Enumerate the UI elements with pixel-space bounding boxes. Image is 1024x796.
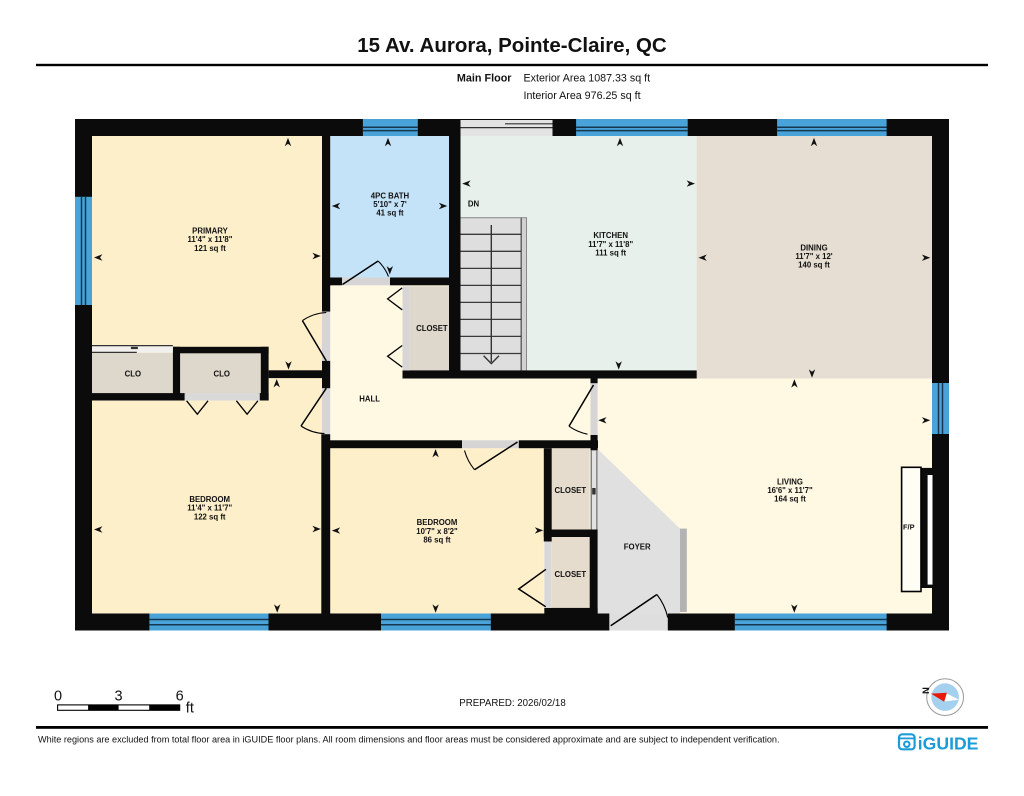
svg-text:CLO: CLO	[213, 370, 229, 379]
svg-text:ft: ft	[186, 701, 194, 717]
svg-text:15 Av. Aurora, Pointe-Claire,: 15 Av. Aurora, Pointe-Claire, QC	[357, 34, 667, 57]
svg-text:111 sq ft: 111 sq ft	[595, 248, 626, 257]
svg-text:0: 0	[54, 689, 62, 705]
svg-text:CLOSET: CLOSET	[554, 486, 586, 495]
svg-text:Interior Area 976.25 sq ft: Interior Area 976.25 sq ft	[524, 90, 641, 102]
svg-text:140 sq ft: 140 sq ft	[798, 261, 830, 270]
svg-text:PREPARED: 2026/02/18: PREPARED: 2026/02/18	[459, 698, 565, 709]
svg-text:3: 3	[115, 689, 123, 705]
svg-text:CLOSET: CLOSET	[416, 324, 448, 333]
svg-text:122 sq ft: 122 sq ft	[194, 512, 226, 521]
svg-text:CLO: CLO	[125, 370, 141, 379]
svg-text:iGUIDE: iGUIDE	[918, 734, 979, 754]
svg-text:FOYER: FOYER	[624, 543, 651, 552]
svg-text:DN: DN	[468, 199, 480, 208]
svg-text:Main Floor: Main Floor	[457, 73, 512, 85]
svg-text:121 sq ft: 121 sq ft	[194, 244, 226, 253]
svg-text:N: N	[920, 687, 931, 694]
svg-text:41 sq ft: 41 sq ft	[376, 209, 404, 218]
svg-text:White regions are excluded fro: White regions are excluded from total fl…	[38, 735, 780, 745]
svg-text:Exterior Area 1087.33 sq ft: Exterior Area 1087.33 sq ft	[524, 73, 651, 85]
svg-text:F/P: F/P	[903, 522, 915, 531]
svg-text:164 sq ft: 164 sq ft	[774, 495, 806, 504]
svg-text:HALL: HALL	[359, 395, 380, 404]
svg-text:CLOSET: CLOSET	[554, 570, 586, 579]
svg-text:86 sq ft: 86 sq ft	[423, 535, 451, 544]
svg-text:6: 6	[176, 689, 184, 705]
